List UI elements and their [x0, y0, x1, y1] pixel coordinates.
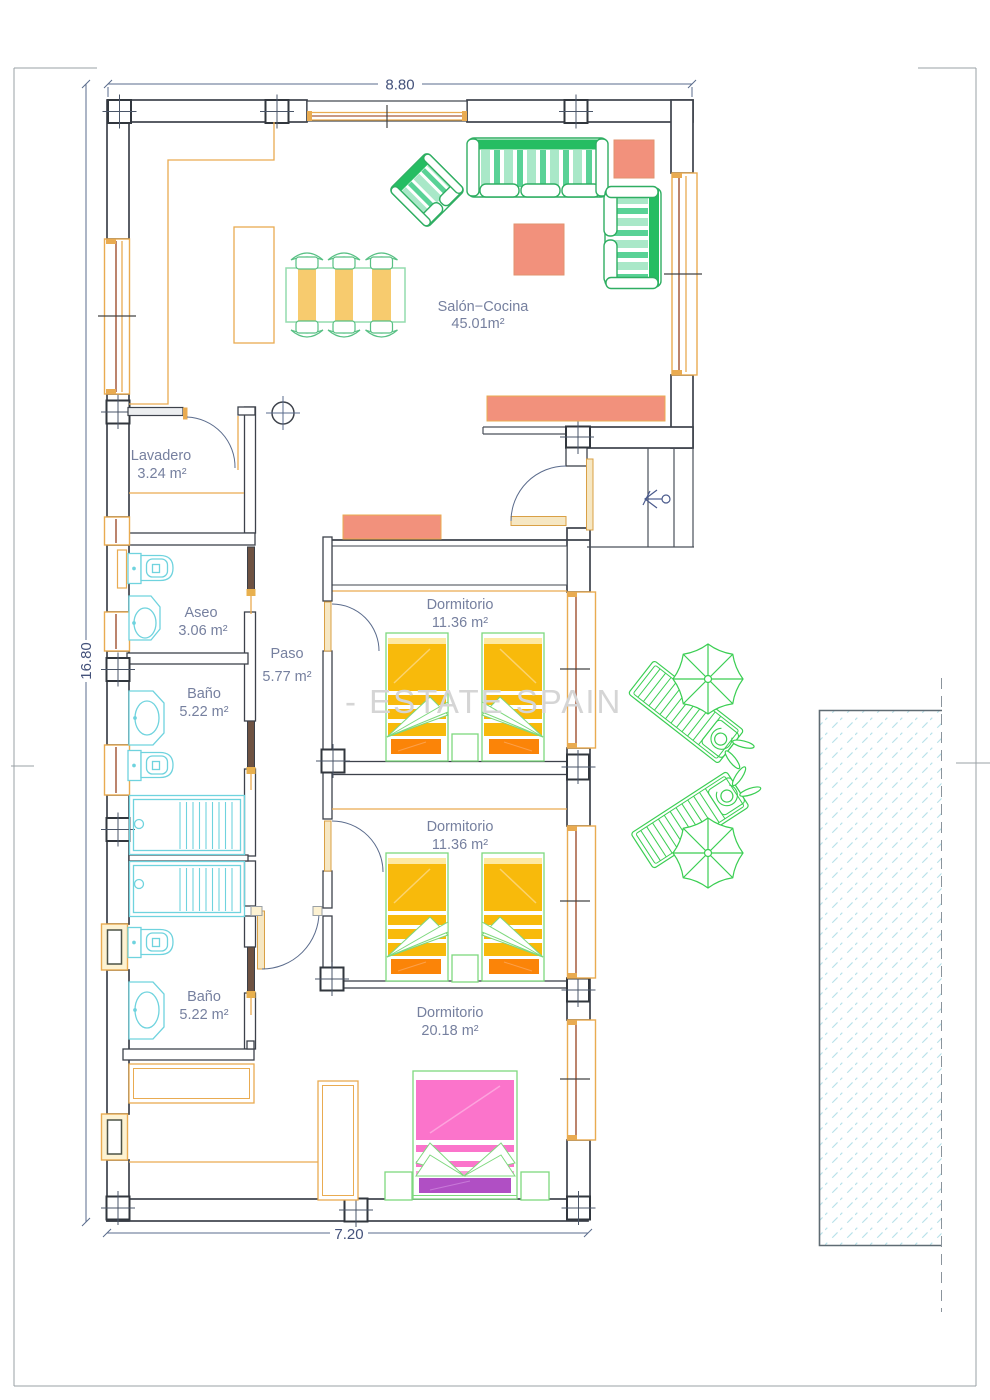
svg-text:Dormitorio: Dormitorio	[427, 819, 494, 835]
svg-text:- ESTATE SPAIN: - ESTATE SPAIN	[345, 683, 622, 720]
svg-text:Lavadero: Lavadero	[131, 448, 191, 464]
svg-text:5.22 m²: 5.22 m²	[179, 1007, 228, 1023]
svg-text:11.36 m²: 11.36 m²	[432, 837, 488, 853]
svg-text:20.18 m²: 20.18 m²	[421, 1023, 478, 1039]
svg-text:16.80: 16.80	[78, 642, 95, 680]
svg-text:Salón−Cocina: Salón−Cocina	[438, 299, 530, 315]
svg-text:Dormitorio: Dormitorio	[427, 597, 494, 613]
svg-text:Baño: Baño	[187, 686, 221, 702]
svg-text:11.36 m²: 11.36 m²	[432, 615, 488, 631]
svg-text:8.80: 8.80	[385, 77, 414, 94]
svg-text:Baño: Baño	[187, 989, 221, 1005]
svg-text:5.22 m²: 5.22 m²	[179, 704, 228, 720]
svg-text:Dormitorio: Dormitorio	[417, 1005, 484, 1021]
svg-text:5.77 m²: 5.77 m²	[262, 669, 311, 685]
svg-text:45.01m²: 45.01m²	[451, 316, 504, 332]
svg-text:7.20: 7.20	[334, 1226, 363, 1243]
svg-text:Paso: Paso	[270, 646, 303, 662]
svg-text:3.24 m²: 3.24 m²	[137, 466, 186, 482]
svg-text:3.06 m²: 3.06 m²	[178, 623, 227, 639]
svg-text:Aseo: Aseo	[184, 605, 217, 621]
